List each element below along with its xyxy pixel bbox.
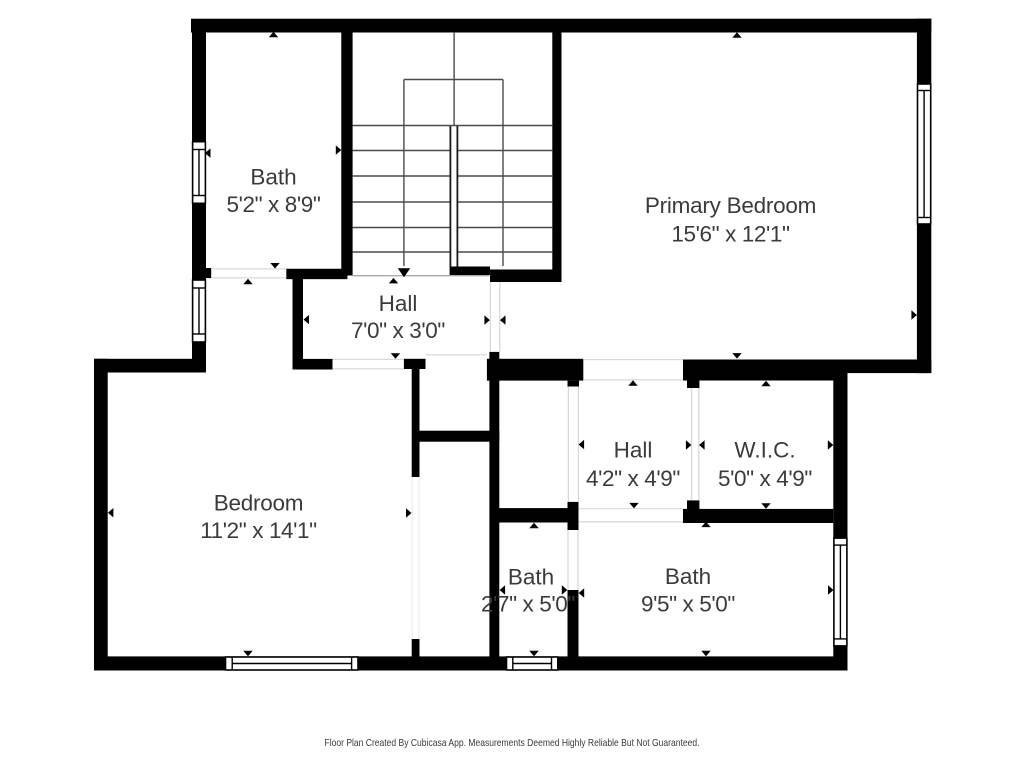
- svg-text:9'5" x 5'0": 9'5" x 5'0": [641, 592, 735, 617]
- svg-text:Primary Bedroom: Primary Bedroom: [645, 193, 816, 218]
- svg-text:7'0" x 3'0": 7'0" x 3'0": [351, 318, 445, 343]
- svg-text:Bedroom: Bedroom: [214, 491, 304, 516]
- svg-text:Bath: Bath: [250, 165, 296, 190]
- svg-text:Bath: Bath: [665, 564, 711, 589]
- svg-text:4'2" x 4'9": 4'2" x 4'9": [586, 466, 680, 491]
- svg-text:11'2" x 14'1": 11'2" x 14'1": [200, 518, 317, 543]
- svg-text:W.I.C.: W.I.C.: [734, 438, 795, 463]
- svg-text:2'7" x 5'0": 2'7" x 5'0": [481, 592, 575, 617]
- svg-text:Hall: Hall: [379, 291, 418, 316]
- svg-text:15'6" x 12'1": 15'6" x 12'1": [671, 222, 790, 247]
- svg-text:5'2" x 8'9": 5'2" x 8'9": [227, 192, 321, 217]
- svg-text:Hall: Hall: [614, 438, 653, 463]
- svg-text:Floor Plan Created By Cubicasa: Floor Plan Created By Cubicasa App. Meas…: [325, 738, 700, 749]
- svg-text:Bath: Bath: [508, 565, 554, 590]
- svg-text:5'0" x 4'9": 5'0" x 4'9": [718, 466, 812, 491]
